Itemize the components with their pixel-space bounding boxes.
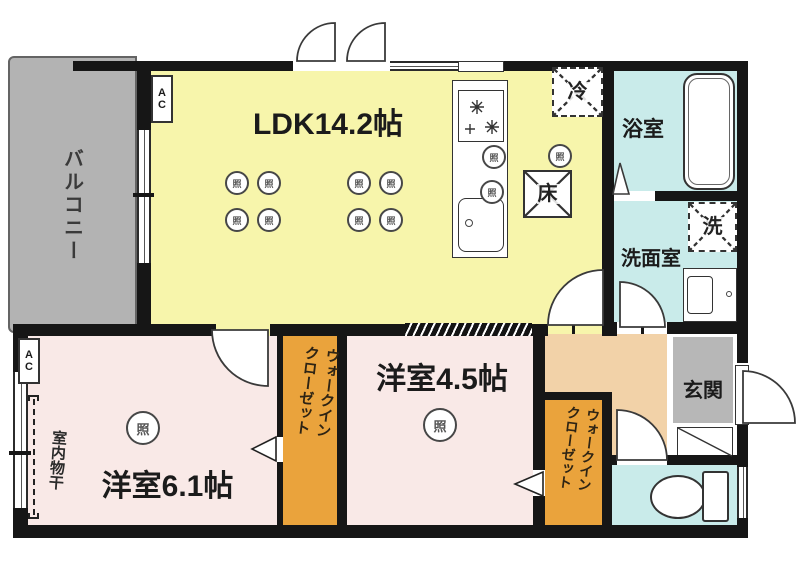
bath-label: 浴室 bbox=[610, 114, 676, 142]
wall bbox=[603, 455, 617, 465]
bedroom1-label-text: 洋室6.1帖 bbox=[102, 461, 234, 505]
downlight-icon: 照 bbox=[379, 208, 403, 232]
wall bbox=[602, 61, 614, 336]
sink-drain bbox=[465, 219, 473, 227]
bedroom1-window bbox=[13, 372, 28, 508]
drying-pole-cap bbox=[28, 395, 39, 401]
floor-storage-symbol: 床 bbox=[523, 170, 572, 218]
bathtub bbox=[683, 73, 735, 190]
bath-label-text: 浴室 bbox=[622, 113, 664, 143]
washing-machine-symbol: 洗 bbox=[688, 202, 737, 252]
downlight-icon: 照 bbox=[482, 145, 506, 169]
downlight-icon: 照 bbox=[480, 180, 504, 204]
downlight-icon: 照 bbox=[347, 208, 371, 232]
wall bbox=[655, 191, 737, 201]
downlight-icon: 照 bbox=[347, 171, 371, 195]
downlight-icon: 照 bbox=[225, 208, 249, 232]
french-door-arc bbox=[297, 23, 335, 61]
ac-label: AC bbox=[23, 349, 35, 373]
wall bbox=[13, 324, 216, 336]
vanity-sink bbox=[687, 276, 713, 314]
balcony-label: バルコニー bbox=[52, 130, 92, 280]
indoor-drying-text: 室内物干 bbox=[44, 429, 69, 490]
ac-unit-ldk: AC bbox=[151, 75, 173, 123]
toilet-window bbox=[737, 467, 748, 518]
toilet-bowl bbox=[650, 475, 706, 519]
entrance-label-text: 玄関 bbox=[683, 374, 723, 403]
wall bbox=[533, 392, 612, 400]
vanity-knob bbox=[726, 291, 732, 297]
window-tick bbox=[133, 193, 154, 197]
ldk-label-text: LDK14.2帖 bbox=[253, 99, 403, 143]
entrance-door-leaf bbox=[735, 365, 749, 425]
kitchen-window bbox=[458, 61, 504, 72]
downlight-icon: 照 bbox=[257, 171, 281, 195]
closet2-opening bbox=[533, 470, 545, 496]
drying-pole bbox=[33, 399, 35, 515]
window bbox=[390, 61, 458, 71]
door-jamb bbox=[641, 322, 644, 334]
refrigerator-symbol: 冷 bbox=[552, 67, 603, 117]
ceiling-light-icon: 照 bbox=[126, 411, 160, 445]
stove bbox=[458, 90, 504, 142]
balcony-label-text: バルコニー bbox=[58, 148, 87, 263]
downlight-icon: 照 bbox=[548, 144, 572, 168]
hallway-lower bbox=[612, 392, 667, 455]
window-tick bbox=[9, 451, 31, 455]
floor-plan: 冷 床 洗 AC AC 照 照 照 照 照 照 照 照 照 照 照 照 照 バル… bbox=[0, 0, 800, 562]
wall bbox=[13, 525, 748, 538]
ac-label: AC bbox=[156, 87, 168, 111]
ceiling-light-icon: 照 bbox=[423, 408, 457, 442]
wall bbox=[667, 322, 737, 334]
entrance-door-arc bbox=[743, 371, 795, 423]
refrigerator-label: 冷 bbox=[567, 82, 589, 102]
wall bbox=[503, 61, 748, 71]
washroom-label: 洗面室 bbox=[608, 243, 694, 269]
bedroom2-label-text: 洋室4.5帖 bbox=[376, 354, 508, 398]
washroom-label-text: 洗面室 bbox=[621, 242, 681, 271]
wall bbox=[667, 455, 748, 465]
bathtub-inner bbox=[688, 78, 730, 185]
downlight-icon: 照 bbox=[257, 208, 281, 232]
wall bbox=[737, 61, 748, 363]
bedroom2-label: 洋室4.5帖 bbox=[352, 357, 532, 395]
shoe-cabinet bbox=[677, 427, 733, 457]
ldk-label: LDK14.2帖 bbox=[218, 103, 438, 139]
drying-pole-cap bbox=[28, 513, 39, 519]
wall bbox=[277, 332, 283, 437]
door-jamb bbox=[572, 323, 575, 334]
downlight-icon: 照 bbox=[379, 171, 403, 195]
washer-label: 洗 bbox=[702, 217, 724, 237]
ac-unit-bedroom1: AC bbox=[18, 338, 40, 384]
hallway-upper bbox=[545, 334, 667, 392]
bedroom1-label: 洋室6.1帖 bbox=[60, 464, 275, 502]
wall bbox=[73, 61, 293, 71]
downlight-icon: 照 bbox=[225, 171, 249, 195]
toilet-tank bbox=[702, 471, 729, 522]
french-door-arc bbox=[347, 23, 385, 61]
wall bbox=[533, 334, 545, 470]
wall bbox=[137, 61, 151, 130]
floor-storage-label: 床 bbox=[537, 184, 559, 204]
sliding-door bbox=[405, 323, 532, 336]
entrance-label: 玄関 bbox=[672, 375, 734, 401]
